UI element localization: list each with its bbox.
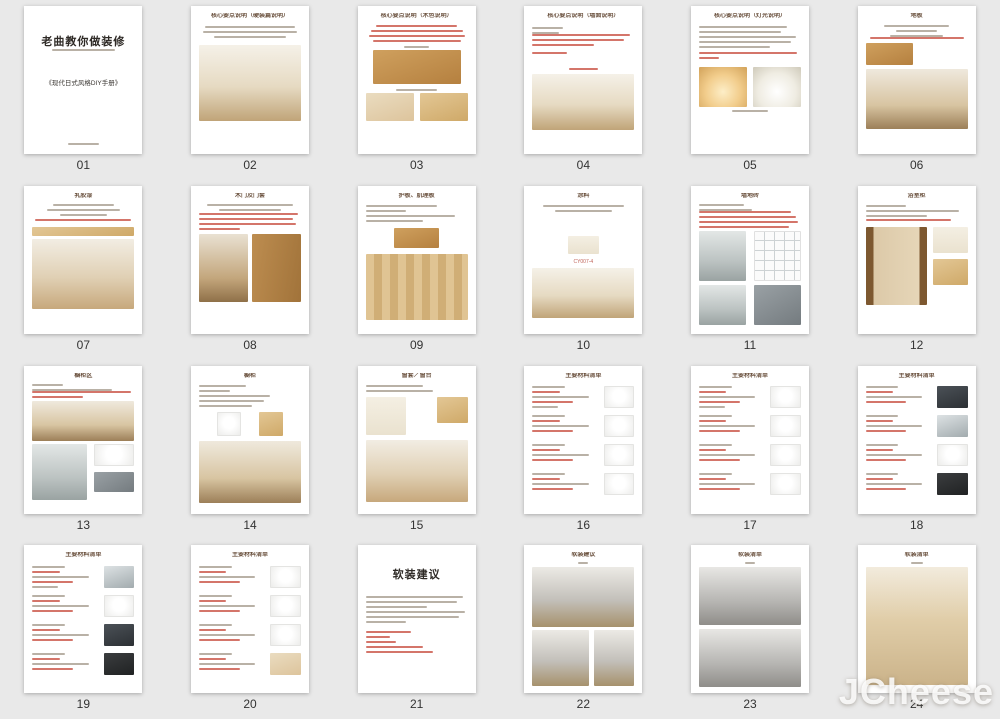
gas-stove-image (104, 653, 135, 675)
page-cell-07: 乳胶漆07 (0, 180, 167, 360)
material-entry (699, 415, 801, 437)
page-cell-13: 橱柜区13 (0, 360, 167, 540)
text-line (373, 40, 461, 42)
text-lines (199, 26, 301, 38)
image-row (532, 630, 634, 686)
text-line (32, 384, 63, 386)
page-title: 主要材料清单 (699, 373, 801, 381)
image-stack (94, 444, 135, 492)
image-row (199, 234, 301, 302)
kitchen-photo (199, 441, 301, 503)
text-line (866, 219, 952, 221)
page-title: 涂料 (532, 193, 634, 201)
image-row (366, 93, 468, 121)
text-lines (532, 473, 597, 490)
wood-swatch (933, 259, 968, 285)
floor-sample (866, 43, 913, 65)
text-line (35, 219, 131, 221)
text-line (366, 385, 423, 387)
text-line (366, 390, 433, 392)
text-lines (32, 595, 97, 612)
page-thumbnail-15[interactable]: 窗套／窗台 (358, 366, 476, 514)
text-line (870, 37, 964, 39)
page-thumbnail-19[interactable]: 主要材料清单 (24, 545, 142, 693)
storage-jars-image (270, 653, 301, 675)
text-lines (32, 219, 134, 221)
kitchen-sink-image (104, 566, 135, 588)
tile-swatch (933, 227, 968, 253)
page-number: 12 (910, 339, 923, 351)
text-line (699, 386, 732, 388)
image-row (366, 397, 468, 435)
wash-basin-image (604, 444, 635, 466)
text-line (366, 616, 460, 618)
text-line (199, 658, 226, 660)
text-line (32, 581, 73, 583)
page-thumbnail-22[interactable]: 软装建议 (524, 545, 642, 693)
spacer (532, 54, 634, 68)
text-line (532, 478, 559, 480)
text-line (732, 110, 769, 112)
page-thumbnail-20[interactable]: 主要材料清单 (191, 545, 309, 693)
text-line (199, 218, 293, 220)
text-line (32, 624, 65, 626)
text-lines (866, 386, 931, 403)
text-line (199, 634, 255, 636)
page-cell-22: 软装建议22 (500, 539, 667, 719)
cool-light-photo (753, 67, 801, 107)
text-line (199, 228, 240, 230)
text-line (32, 586, 58, 588)
text-line (543, 205, 625, 207)
spacer (699, 59, 801, 67)
text-line (199, 395, 270, 397)
material-entry (699, 473, 801, 495)
text-line (207, 204, 293, 206)
page-cell-14: 橱柜14 (167, 360, 334, 540)
gray-tile-sample (754, 285, 801, 325)
text-line (532, 488, 573, 490)
page-cell-21: 软装建议21 (333, 539, 500, 719)
text-line (199, 385, 246, 387)
text-line (199, 668, 240, 670)
page-thumbnail-04[interactable]: 核心要点说明（墙面说明） (524, 6, 642, 154)
ceiling-lamp-image (270, 595, 301, 617)
text-line (199, 576, 255, 578)
smart-toilet-seat-image (770, 473, 801, 495)
text-line (32, 668, 73, 670)
text-line (866, 396, 922, 398)
page-title: 乳胶漆 (32, 193, 134, 201)
kitchen-passage-photo (32, 444, 87, 500)
text-lines (866, 444, 931, 461)
text-line (532, 473, 565, 475)
text-lines (699, 52, 801, 59)
tile-layout-diagram (754, 231, 801, 281)
text-line (32, 605, 88, 607)
text-lines (199, 624, 264, 641)
text-line (699, 216, 796, 218)
page-cell-10: 涂料CY007-410 (500, 180, 667, 360)
page-title: 核心要点说明（墙面说明） (532, 13, 634, 21)
text-line (699, 444, 732, 446)
text-line (219, 209, 280, 211)
page-thumbnail-08[interactable]: 木门及门套 (191, 186, 309, 334)
text-lines (699, 110, 801, 112)
material-entry (866, 415, 968, 437)
page-title: 橱柜区 (32, 373, 134, 381)
text-line (32, 571, 59, 573)
text-line (532, 406, 558, 408)
text-line (532, 39, 624, 41)
text-lines (199, 385, 301, 407)
text-lines (532, 205, 634, 212)
page-title: 墙地砖 (699, 193, 801, 201)
spacer (32, 13, 134, 33)
tile-image (94, 472, 135, 492)
text-line (366, 220, 423, 222)
text-lines (866, 37, 968, 39)
empty-room-photo (532, 74, 634, 130)
dining-room-photo (866, 69, 968, 129)
text-line (699, 430, 740, 432)
basin-faucet-image (604, 473, 635, 495)
text-line (532, 454, 588, 456)
page-thumbnail-13[interactable]: 橱柜区 (24, 366, 142, 514)
page-title: 核心要点说明（木色说明） (366, 13, 468, 21)
page-cell-15: 窗套／窗台15 (333, 360, 500, 540)
bathroom-photo-2 (699, 285, 746, 325)
text-line (699, 36, 796, 38)
text-lines (32, 566, 97, 588)
material-entry (532, 386, 634, 408)
bedroom-photo (32, 239, 134, 309)
text-line (896, 30, 937, 32)
page-thumbnail-06[interactable]: 地板 (858, 6, 976, 154)
text-line (532, 425, 588, 427)
page-title: 主要材料清单 (199, 552, 301, 560)
wood-sample-left (366, 93, 414, 121)
paint-swatch (568, 236, 599, 254)
text-line (366, 611, 465, 613)
spacer (32, 51, 134, 77)
page-thumbnail-10[interactable]: 涂料CY007-4 (524, 186, 642, 334)
text-lines (699, 473, 764, 490)
text-lines (866, 415, 931, 432)
text-line (366, 205, 437, 207)
image-row (32, 444, 134, 500)
text-line (699, 221, 798, 223)
image-row (699, 231, 801, 281)
material-entry (532, 415, 634, 437)
spacer (366, 552, 468, 566)
wood-sample (437, 397, 468, 423)
page-title: 橱柜 (199, 373, 301, 381)
text-lines (199, 204, 301, 211)
text-line (199, 571, 226, 573)
image-row (866, 227, 968, 305)
text-line (32, 629, 59, 631)
text-lines (32, 624, 97, 641)
material-entry (866, 473, 968, 495)
text-line (532, 430, 573, 432)
material-entry (32, 566, 134, 588)
page-cell-16: 主要材料清单16 (500, 360, 667, 540)
page-thumbnail-01[interactable]: 老曲教你做装修《现代日式风格DIY手册》 (24, 6, 142, 154)
text-line (866, 391, 893, 393)
text-line (199, 600, 226, 602)
page-big-title: 老曲教你做装修 (32, 33, 134, 49)
page-number: 16 (577, 519, 590, 531)
page-number: 21 (410, 698, 423, 710)
text-line (199, 624, 232, 626)
wood-panel-sample (259, 412, 283, 436)
text-lines (699, 204, 801, 211)
page-title: 软装清单 (699, 552, 801, 560)
page-thumbnail-12[interactable]: 浴室柜 (858, 186, 976, 334)
page-cell-18: 主要材料清单18 (833, 360, 1000, 540)
text-line (699, 46, 770, 48)
page-number: 23 (743, 698, 756, 710)
text-line (68, 143, 99, 145)
text-lines (32, 143, 134, 145)
page-thumbnail-11[interactable]: 墙地砖 (691, 186, 809, 334)
text-line (532, 44, 593, 46)
page-title: 地板 (866, 13, 968, 21)
page-cell-01: 老曲教你做装修《现代日式风格DIY手册》01 (0, 0, 167, 180)
text-lines (866, 25, 968, 37)
page-number: 24 (910, 698, 923, 710)
text-line (532, 27, 563, 29)
pull-out-faucet-image (104, 595, 135, 617)
page-number: 11 (744, 339, 756, 351)
material-entry (199, 566, 301, 588)
text-line (396, 89, 437, 91)
text-line (699, 204, 744, 206)
pages-grid: 老曲教你做装修《现代日式风格DIY手册》01核心要点说明（硬装篇说明）02核心要… (0, 0, 1000, 719)
spacer (366, 623, 468, 631)
text-line (699, 415, 732, 417)
text-line (866, 488, 907, 490)
text-line (699, 459, 740, 461)
text-line (532, 386, 565, 388)
page-number: 06 (910, 159, 923, 171)
sofa-photo (532, 567, 634, 627)
text-line (199, 223, 296, 225)
hallway-photo (199, 234, 248, 302)
text-line (532, 483, 588, 485)
text-line (366, 606, 427, 608)
page-thumbnail-18[interactable]: 主要材料清单 (858, 366, 976, 514)
text-lines (699, 415, 764, 432)
text-line (866, 459, 907, 461)
loveseat-photo (532, 630, 589, 686)
text-line (366, 651, 433, 653)
page-number: 17 (743, 519, 756, 531)
text-lines (366, 385, 468, 392)
text-line (699, 483, 755, 485)
page-cell-04: 核心要点说明（墙面说明）04 (500, 0, 667, 180)
text-line (699, 31, 781, 33)
switch-panel-image (270, 566, 301, 588)
material-entry (32, 595, 134, 617)
page-thumbnail-03[interactable]: 核心要点说明（木色说明） (358, 6, 476, 154)
text-line (532, 449, 559, 451)
text-line (199, 629, 226, 631)
text-line (866, 425, 922, 427)
material-entry (199, 624, 301, 646)
text-line (699, 211, 791, 213)
spacer (532, 70, 634, 74)
wood-door-photo (252, 234, 301, 302)
text-line (699, 425, 755, 427)
page-title: 护板、肌理板 (366, 193, 468, 201)
page-thumbnail-21[interactable]: 软装建议 (358, 545, 476, 693)
page-number: 08 (243, 339, 256, 351)
page-number: 03 (410, 159, 423, 171)
page-number: 02 (243, 159, 256, 171)
sofa-photo (699, 567, 801, 625)
text-lines (199, 213, 301, 230)
downlight-image (270, 624, 301, 646)
image-row (699, 67, 801, 107)
spacer (866, 39, 968, 43)
loveseat-photo (699, 629, 801, 687)
page-title: 软装清单 (866, 552, 968, 560)
text-line (699, 396, 755, 398)
text-line (866, 454, 922, 456)
text-lines (32, 204, 134, 216)
text-line (404, 46, 428, 48)
text-lines (366, 25, 468, 42)
page-cell-08: 木门及门套08 (167, 180, 334, 360)
shower-faucet-image (770, 444, 801, 466)
text-line (366, 210, 407, 212)
range-hood-image (104, 624, 135, 646)
text-line (366, 596, 463, 598)
text-line (699, 420, 726, 422)
page-thumbnail-02[interactable]: 核心要点说明（硬装篇说明） (191, 6, 309, 154)
text-lines (32, 391, 134, 398)
page-thumbnail-17[interactable]: 主要材料清单 (691, 366, 809, 514)
page-number: 01 (77, 159, 90, 171)
page-thumbnail-23[interactable]: 软装清单 (691, 545, 809, 693)
armchair-photo (594, 630, 635, 686)
window-photo (366, 397, 407, 435)
text-line (32, 595, 65, 597)
text-line (32, 566, 65, 568)
text-line (578, 562, 588, 564)
towel-rack-image (937, 415, 968, 437)
shower-set-image (770, 386, 801, 408)
text-line (199, 653, 232, 655)
material-entry (199, 653, 301, 675)
text-line (369, 35, 465, 37)
bathtub-image (770, 415, 801, 437)
text-lines (532, 27, 634, 34)
text-line (366, 621, 407, 623)
text-line (555, 210, 612, 212)
text-line (699, 488, 740, 490)
text-line (866, 449, 893, 451)
text-line (52, 49, 115, 51)
page-cell-17: 主要材料清单17 (667, 360, 834, 540)
page-number: 13 (77, 519, 90, 531)
page-cell-19: 主要材料清单19 (0, 539, 167, 719)
page-cell-24: 软装清单24 (833, 539, 1000, 719)
text-line (532, 396, 588, 398)
text-line (214, 36, 285, 38)
page-thumbnail-05[interactable]: 核心要点说明（灯光说明） (691, 6, 809, 154)
text-lines (366, 596, 468, 623)
text-line (199, 400, 264, 402)
text-line (699, 41, 791, 43)
text-line (569, 68, 598, 70)
text-line (866, 430, 907, 432)
text-line (32, 663, 88, 665)
text-line (911, 562, 923, 564)
page-title: 窗套／窗台 (366, 373, 468, 381)
page-subtitle: 《现代日式风格DIY手册》 (32, 77, 134, 87)
text-lines (366, 205, 468, 222)
text-line (532, 391, 559, 393)
page-thumbnail-16[interactable]: 主要材料清单 (524, 366, 642, 514)
material-entry (199, 595, 301, 617)
text-line (532, 401, 573, 403)
material-entry (32, 653, 134, 675)
page-title: 浴室柜 (866, 193, 968, 201)
paint-color-strip (32, 227, 134, 236)
page-title: 主要材料清单 (532, 373, 634, 381)
spacer (32, 87, 134, 143)
page-thumbnail-14[interactable]: 橱柜 (191, 366, 309, 514)
text-line (532, 459, 573, 461)
image-row (199, 412, 301, 436)
spacer (866, 65, 968, 69)
floor-drain-image (937, 444, 968, 466)
text-line (532, 34, 630, 36)
page-title: 软装建议 (532, 552, 634, 560)
floor-drain-dark-image (937, 473, 968, 495)
text-lines (199, 595, 264, 612)
page-number: 22 (577, 698, 590, 710)
page-cell-20: 主要材料清单20 (167, 539, 334, 719)
text-line (32, 610, 73, 612)
page-cell-06: 地板06 (833, 0, 1000, 180)
text-lines (866, 473, 931, 490)
text-line (32, 658, 59, 660)
text-line (532, 420, 559, 422)
text-lines (532, 444, 597, 461)
page-thumbnail-07[interactable]: 乳胶漆 (24, 186, 142, 334)
page-number: 05 (743, 159, 756, 171)
text-line (866, 473, 899, 475)
text-line (699, 401, 740, 403)
wood-sample-right (420, 93, 468, 121)
text-lines (532, 34, 634, 46)
page-thumbnail-09[interactable]: 护板、肌理板 (358, 186, 476, 334)
text-lines (532, 386, 597, 408)
panel-sample (394, 228, 439, 248)
text-lines (699, 386, 764, 408)
page-number: 18 (910, 519, 923, 531)
text-line (866, 483, 922, 485)
text-line (47, 209, 120, 211)
material-entry (532, 473, 634, 495)
page-thumbnail-24[interactable]: 软装清单 (858, 545, 976, 693)
text-line (699, 57, 719, 59)
text-line (866, 444, 899, 446)
